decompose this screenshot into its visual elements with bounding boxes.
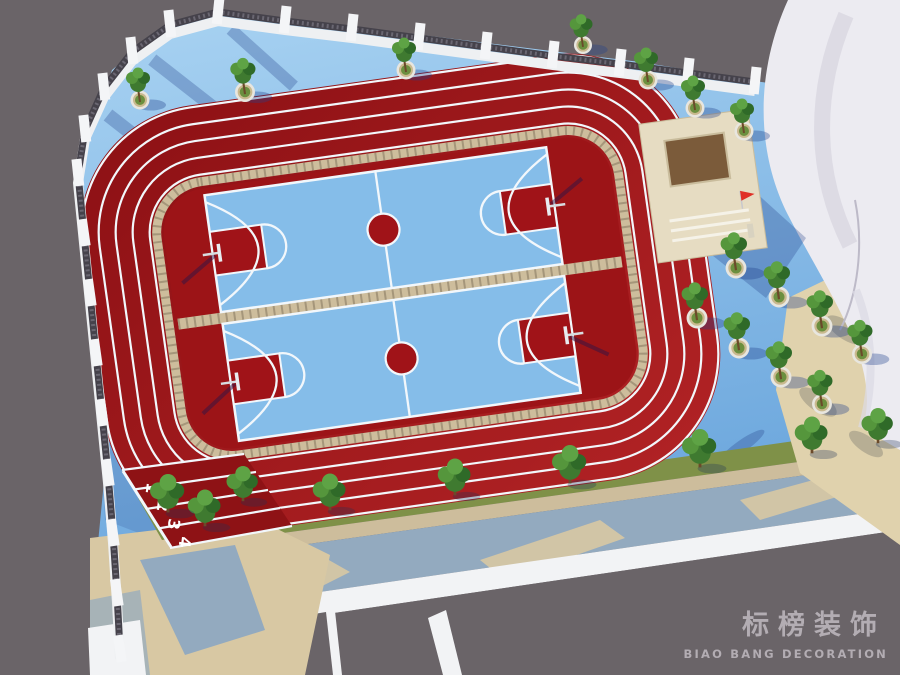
watermark-subtitle: BIAO BANG DECORATION [684,647,888,661]
lane-number-4: 4 [175,536,195,549]
watermark-title: 标榜装饰 [742,609,886,641]
rendering-canvas: 1 2 3 4 [0,0,900,675]
sports-ground-rendering: 1 2 3 4 [0,0,900,675]
lane-number-3: 3 [164,518,184,531]
